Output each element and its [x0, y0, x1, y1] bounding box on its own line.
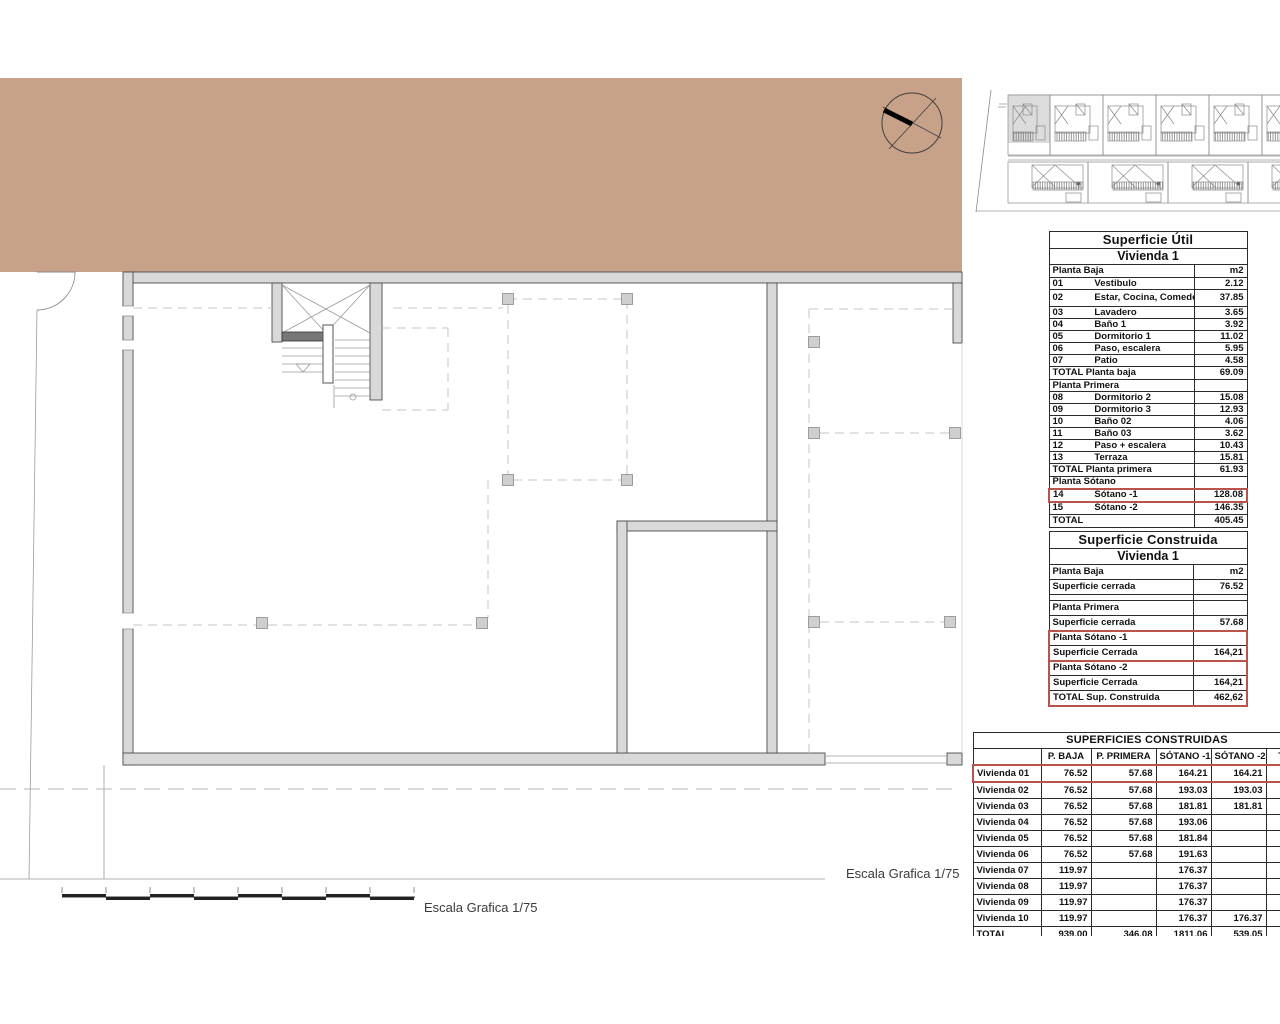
room-name: Terraza — [1091, 452, 1194, 464]
room-number: 10 — [1049, 416, 1091, 428]
table-row: Vivienda 0376.5257.68181.81181.81 — [973, 799, 1280, 815]
area-value: 176.37 — [1156, 863, 1211, 879]
area-value: 15.08 — [1194, 392, 1247, 404]
area-value: 3.65 — [1194, 307, 1247, 319]
room-number: 05 — [1049, 331, 1091, 343]
vivienda-label: TOTAL — [973, 927, 1041, 937]
area-value — [1266, 765, 1280, 782]
table-row: 12Paso + escalera10.43 — [1049, 440, 1247, 452]
superficie-util-table: Superficie ÚtilVivienda 1Planta Bajam201… — [1048, 231, 1248, 528]
area-value — [1091, 879, 1156, 895]
table-row: Planta Primera — [1049, 380, 1247, 392]
table-row: Vivienda 09119.97176.37 — [973, 895, 1280, 911]
area-value — [1266, 863, 1280, 879]
site-house-top — [1262, 95, 1280, 155]
area-value: 119.97 — [1041, 879, 1091, 895]
area-value — [1211, 815, 1266, 831]
vivienda-label: Vivienda 05 — [973, 831, 1041, 847]
stair-landing-wall — [282, 332, 323, 341]
area-value: 181.84 — [1156, 831, 1211, 847]
site-plan-top-row — [1008, 95, 1280, 155]
vivienda-label: Vivienda 01 — [973, 765, 1041, 782]
area-value — [1266, 911, 1280, 927]
table-row: SUPERFICIES CONSTRUIDAS — [973, 733, 1280, 749]
room-number: 11 — [1049, 428, 1091, 440]
vivienda-label: Vivienda 07 — [973, 863, 1041, 879]
area-value: 37.85 — [1194, 290, 1247, 307]
room-number: 09 — [1049, 404, 1091, 416]
room-number: 01 — [1049, 278, 1091, 290]
table-row: P. BAJAP. PRIMERASÓTANO -1SÓTANO -2TOTAL — [973, 749, 1280, 766]
room-number: 06 — [1049, 343, 1091, 355]
area-value: 76.52 — [1041, 765, 1091, 782]
area-value — [1266, 879, 1280, 895]
table-row: 03Lavadero3.65 — [1049, 307, 1247, 319]
area-value: 57.68 — [1091, 847, 1156, 863]
area-value: 191.63 — [1156, 847, 1211, 863]
area-value — [1266, 815, 1280, 831]
table-row: Vivienda 0276.5257.68193.03193.03 — [973, 782, 1280, 799]
section-label: Planta Sótano — [1049, 477, 1194, 489]
area-value: m2 — [1193, 565, 1247, 580]
table-row: 08Dormitorio 215.08 — [1049, 392, 1247, 404]
area-value — [1091, 895, 1156, 911]
area-value: 76.52 — [1041, 782, 1091, 799]
superficie-construida-table: Superficie ConstruidaVivienda 1Planta Ba… — [1048, 531, 1248, 707]
area-value — [1193, 661, 1247, 676]
area-value: 176.37 — [1156, 911, 1211, 927]
area-value — [1266, 895, 1280, 911]
door-swing-arc — [37, 272, 75, 310]
row-label: TOTAL Sup. Construida — [1049, 691, 1193, 706]
area-value: 3.62 — [1194, 428, 1247, 440]
column-marker — [622, 475, 633, 486]
area-value: 76.52 — [1041, 831, 1091, 847]
site-house-top — [1008, 95, 1050, 155]
row-label: Planta Baja — [1049, 565, 1193, 580]
area-value: 2.12 — [1194, 278, 1247, 290]
table-row: 06Paso, escalera5.95 — [1049, 343, 1247, 355]
site-house-top — [1103, 95, 1156, 155]
area-value: 539.05 — [1211, 927, 1266, 937]
area-value — [1193, 631, 1247, 646]
site-house-bottom — [1248, 162, 1280, 203]
room-name: Sótano -2 — [1091, 502, 1194, 515]
area-value: 1811.06 — [1156, 927, 1211, 937]
area-value — [1091, 863, 1156, 879]
area-value — [1193, 601, 1247, 616]
area-value — [1266, 831, 1280, 847]
column-marker — [809, 617, 820, 628]
area-value: 12.93 — [1194, 404, 1247, 416]
total-label: TOTAL Planta primera — [1049, 464, 1194, 477]
table-row: Planta Sótano -1 — [1049, 631, 1247, 646]
area-value: 76.52 — [1041, 799, 1091, 815]
room-name: Dormitorio 1 — [1091, 331, 1194, 343]
room-number: 03 — [1049, 307, 1091, 319]
area-value: 193.06 — [1156, 815, 1211, 831]
stair-railing — [323, 325, 333, 383]
area-value: 57.68 — [1091, 799, 1156, 815]
row-label: Planta Sótano -1 — [1049, 631, 1193, 646]
room-name: Dormitorio 2 — [1091, 392, 1194, 404]
table-row: Vivienda 0576.5257.68181.84 — [973, 831, 1280, 847]
room-number: 12 — [1049, 440, 1091, 452]
area-value — [1211, 831, 1266, 847]
ceiling-dashed-lines — [133, 299, 953, 753]
table-row: Planta Bajam2 — [1049, 265, 1247, 278]
area-value — [1194, 477, 1247, 489]
area-value: 176.37 — [1156, 895, 1211, 911]
area-value: 176.37 — [1211, 911, 1266, 927]
area-value: 76.52 — [1041, 847, 1091, 863]
area-value: 3.92 — [1194, 319, 1247, 331]
vivienda-label: Vivienda 08 — [973, 879, 1041, 895]
area-value: 15.81 — [1194, 452, 1247, 464]
vivienda-label: Vivienda 09 — [973, 895, 1041, 911]
area-value: 76.52 — [1193, 580, 1247, 595]
column-marker — [503, 475, 514, 486]
area-value: 181.81 — [1211, 799, 1266, 815]
bottom-opening-lines — [825, 343, 962, 763]
area-value: 405.45 — [1194, 515, 1247, 528]
column-marker — [257, 618, 268, 629]
table-row: Vivienda 1 — [1049, 249, 1247, 265]
room-number: 15 — [1049, 502, 1091, 515]
table-row: Superficie Cerrada164,21 — [1049, 646, 1247, 661]
room-number: 14 — [1049, 489, 1091, 502]
table-row: Planta Sótano -2 — [1049, 661, 1247, 676]
column-marker — [950, 428, 961, 439]
area-value: 176.37 — [1156, 879, 1211, 895]
area-value: 10.43 — [1194, 440, 1247, 452]
area-value: 4.58 — [1194, 355, 1247, 367]
total-label: TOTAL — [1049, 515, 1194, 528]
row-label: Planta Primera — [1049, 601, 1193, 616]
area-value: 57.68 — [1091, 815, 1156, 831]
room-number: 13 — [1049, 452, 1091, 464]
table-subtitle: Vivienda 1 — [1049, 249, 1247, 265]
vivienda-label: Vivienda 10 — [973, 911, 1041, 927]
table-row: 13Terraza15.81 — [1049, 452, 1247, 464]
column-marker — [477, 618, 488, 629]
area-value: 57.68 — [1091, 782, 1156, 799]
table-row: Vivienda 07119.97176.37 — [973, 863, 1280, 879]
column-header: SÓTANO -2 — [1211, 749, 1266, 766]
vivienda-label: Vivienda 02 — [973, 782, 1041, 799]
table-row: Superficie Útil — [1049, 232, 1247, 249]
site-house-top — [1209, 95, 1262, 155]
area-value: 164.21 — [1211, 765, 1266, 782]
room-name: Baño 03 — [1091, 428, 1194, 440]
table-row: Superficie cerrada76.52 — [1049, 580, 1247, 595]
drawing-sheet: Escala Grafica 1/75 Escala Grafica 1/75 … — [0, 0, 1280, 1024]
area-value: 61.93 — [1194, 464, 1247, 477]
superficies-construidas-table: SUPERFICIES CONSTRUIDASP. BAJAP. PRIMERA… — [972, 732, 1280, 936]
area-value — [1091, 911, 1156, 927]
room-name: Paso, escalera — [1091, 343, 1194, 355]
site-house-bottom — [1088, 162, 1168, 203]
column-header: P. PRIMERA — [1091, 749, 1156, 766]
table-row: TOTAL405.45 — [1049, 515, 1247, 528]
table-row: Vivienda 10119.97176.37176.37 — [973, 911, 1280, 927]
row-label: Superficie cerrada — [1049, 616, 1193, 631]
row-label: Planta Sótano -2 — [1049, 661, 1193, 676]
vivienda-label: Vivienda 06 — [973, 847, 1041, 863]
vivienda-label: Vivienda 04 — [973, 815, 1041, 831]
table-row: 15Sótano -2146.35 — [1049, 502, 1247, 515]
table-row: Vivienda 0676.5257.68191.63 — [973, 847, 1280, 863]
area-value: 119.97 — [1041, 863, 1091, 879]
site-house-bottom — [1008, 162, 1088, 203]
structural-columns — [257, 294, 961, 629]
area-value: 11.02 — [1194, 331, 1247, 343]
site-house-top — [1156, 95, 1209, 155]
area-value: 76.52 — [1041, 815, 1091, 831]
table-row: Superficie Cerrada164,21 — [1049, 676, 1247, 691]
column-marker — [809, 428, 820, 439]
area-value: 69.09 — [1194, 367, 1247, 380]
site-house-bottom — [1168, 162, 1248, 203]
room-name: Lavadero — [1091, 307, 1194, 319]
room-number: 04 — [1049, 319, 1091, 331]
area-value — [1266, 927, 1280, 937]
table-row: Vivienda 0476.5257.68193.06 — [973, 815, 1280, 831]
unit-label: m2 — [1194, 265, 1247, 278]
table-row: 14Sótano -1128.08 — [1049, 489, 1247, 502]
room-number: 07 — [1049, 355, 1091, 367]
area-value: 164.21 — [1156, 765, 1211, 782]
room-name: Estar, Cocina, Comedor — [1091, 290, 1194, 307]
row-label: Superficie Cerrada — [1049, 646, 1193, 661]
room-name: Patio — [1091, 355, 1194, 367]
table-row: Planta Sótano — [1049, 477, 1247, 489]
table-row: Vivienda 1 — [1049, 549, 1247, 565]
area-value — [1211, 863, 1266, 879]
building-walls — [123, 272, 962, 765]
table-row: TOTAL Planta baja69.09 — [1049, 367, 1247, 380]
area-value — [1266, 799, 1280, 815]
room-number: 02 — [1049, 290, 1091, 307]
table-title: Superficie Construida — [1049, 532, 1247, 549]
area-value — [1211, 879, 1266, 895]
area-value: 5.95 — [1194, 343, 1247, 355]
area-value — [1211, 847, 1266, 863]
area-value: 346.08 — [1091, 927, 1156, 937]
table-title: SUPERFICIES CONSTRUIDAS — [973, 733, 1280, 749]
column-header: TOTAL — [1266, 749, 1280, 766]
area-value: 57.68 — [1193, 616, 1247, 631]
table-row: 05Dormitorio 111.02 — [1049, 331, 1247, 343]
vivienda-label: Vivienda 03 — [973, 799, 1041, 815]
table-row: 11Baño 033.62 — [1049, 428, 1247, 440]
section-label: Planta Baja — [1049, 265, 1194, 278]
scale-label-bottom: Escala Grafica 1/75 — [424, 900, 537, 915]
table-row: TOTAL Sup. Construida462,62 — [1049, 691, 1247, 706]
column-marker — [622, 294, 633, 305]
table-row: 04Baño 13.92 — [1049, 319, 1247, 331]
table-row: Superficie cerrada57.68 — [1049, 616, 1247, 631]
table-row: Vivienda 0176.5257.68164.21164.21 — [973, 765, 1280, 782]
area-value: 193.03 — [1211, 782, 1266, 799]
area-value — [1194, 380, 1247, 392]
area-value: 164,21 — [1193, 646, 1247, 661]
room-name: Baño 1 — [1091, 319, 1194, 331]
area-value: 119.97 — [1041, 895, 1091, 911]
room-name: Vestibulo — [1091, 278, 1194, 290]
area-value: 462,62 — [1193, 691, 1247, 706]
superficies-construidas-table-clip: SUPERFICIES CONSTRUIDASP. BAJAP. PRIMERA… — [972, 732, 1280, 936]
area-value: 193.03 — [1156, 782, 1211, 799]
room-name: Paso + escalera — [1091, 440, 1194, 452]
area-value: 164,21 — [1193, 676, 1247, 691]
table-row: Superficie Construida — [1049, 532, 1247, 549]
row-label: Superficie Cerrada — [1049, 676, 1193, 691]
site-plan-bottom-row — [1008, 162, 1280, 203]
column-marker — [503, 294, 514, 305]
column-header: P. BAJA — [1041, 749, 1091, 766]
area-value: 57.68 — [1091, 765, 1156, 782]
column-marker — [809, 337, 820, 348]
table-row: TOTAL939.00346.081811.06539.05 — [973, 927, 1280, 937]
scale-label-right: Escala Grafica 1/75 — [846, 866, 959, 881]
table-row: Planta Bajam2 — [1049, 565, 1247, 580]
column-header: SÓTANO -1 — [1156, 749, 1211, 766]
table-row: 09Dormitorio 312.93 — [1049, 404, 1247, 416]
room-name: Sótano -1 — [1091, 489, 1194, 502]
table-subtitle: Vivienda 1 — [1049, 549, 1247, 565]
table-row: TOTAL Planta primera61.93 — [1049, 464, 1247, 477]
site-plan-overview — [976, 90, 1280, 212]
table-row: Vivienda 08119.97176.37 — [973, 879, 1280, 895]
corner-cell — [973, 749, 1041, 766]
area-value — [1211, 895, 1266, 911]
area-value — [1266, 782, 1280, 799]
terrain-area — [0, 78, 962, 272]
room-name: Dormitorio 3 — [1091, 404, 1194, 416]
table-row: 01Vestibulo2.12 — [1049, 278, 1247, 290]
row-label: Superficie cerrada — [1049, 580, 1193, 595]
table-row: Planta Primera — [1049, 601, 1247, 616]
site-house-top — [1050, 95, 1103, 155]
area-value — [1266, 847, 1280, 863]
column-marker — [945, 617, 956, 628]
area-value: 128.08 — [1194, 489, 1247, 502]
room-name: Baño 02 — [1091, 416, 1194, 428]
area-value: 939.00 — [1041, 927, 1091, 937]
area-value: 181.81 — [1156, 799, 1211, 815]
total-label: TOTAL Planta baja — [1049, 367, 1194, 380]
room-number: 08 — [1049, 392, 1091, 404]
table-row: 02Estar, Cocina, Comedor37.85 — [1049, 290, 1247, 307]
section-label: Planta Primera — [1049, 380, 1194, 392]
area-value: 4.06 — [1194, 416, 1247, 428]
table-row: 07Patio4.58 — [1049, 355, 1247, 367]
table-row: 10Baño 024.06 — [1049, 416, 1247, 428]
table-title: Superficie Útil — [1049, 232, 1247, 249]
area-value: 119.97 — [1041, 911, 1091, 927]
graphic-scale-bar — [62, 887, 415, 900]
area-value: 146.35 — [1194, 502, 1247, 515]
area-value: 57.68 — [1091, 831, 1156, 847]
